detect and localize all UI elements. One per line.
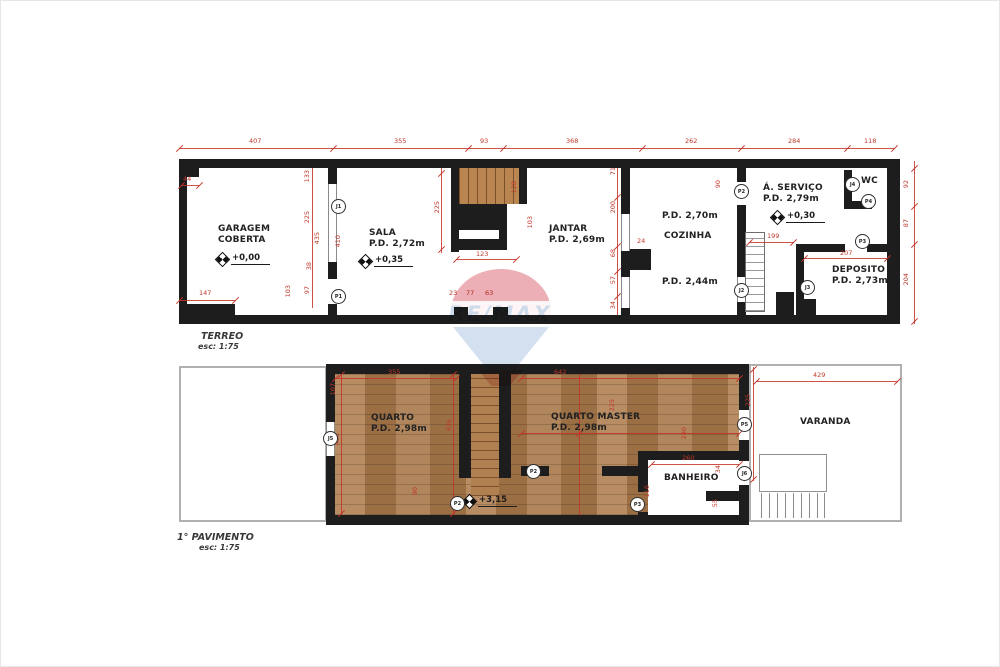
dimension-line <box>181 185 199 186</box>
dimension-label: 87 <box>903 219 910 227</box>
dimension-label: 90 <box>412 487 419 495</box>
room-label-line: P.D. 2,98m <box>551 423 640 434</box>
room-label-line: P.D. 2,44m <box>662 277 718 288</box>
door-window-tag: J6 <box>737 466 752 481</box>
room-label: BANHEIRO <box>664 473 719 484</box>
floorplan-canvas: TERREO esc: 1:75 40735593368262284118441… <box>0 0 1000 667</box>
dimension-line <box>456 259 516 260</box>
dimension-label: 128 <box>511 181 518 193</box>
room-label: VARANDA <box>800 417 851 428</box>
dimension-label: 262 <box>685 138 697 145</box>
dimension-line <box>453 374 454 515</box>
dimension-line <box>756 381 897 382</box>
level-value: +0,30 <box>786 211 825 223</box>
room-label-line: P.D. 2,79m <box>763 194 823 205</box>
door-window-tag: P2 <box>450 496 465 511</box>
door-window-tag: J5 <box>323 431 338 446</box>
dimension-label: 77 <box>466 290 474 297</box>
wall <box>739 440 749 461</box>
banheiro-floor <box>648 460 739 515</box>
room-label-line: QUARTO <box>371 413 427 424</box>
floor-pavimento: 1° PAVIMENTO esc: 1:75 35564242926022510… <box>1 1 999 666</box>
dimension-line <box>579 374 580 515</box>
dimension-line <box>179 300 235 301</box>
dimension-line <box>341 374 342 515</box>
room-label-line: P.D. 2,73m <box>832 276 888 287</box>
wall <box>638 512 648 522</box>
door-window-tag: P3 <box>630 497 645 512</box>
room-label-line: JANTAR <box>549 224 605 235</box>
dimension-label: 23 <box>449 290 457 297</box>
level-diamond-icon <box>770 209 786 225</box>
room-label: SALAP.D. 2,72m <box>369 228 425 250</box>
dimension-label: 68 <box>610 249 617 257</box>
dimension-label: 24 <box>637 238 645 245</box>
room-label-line: BANHEIRO <box>664 473 719 484</box>
dimension-label: 225 <box>434 201 441 213</box>
door-window-tag: P5 <box>737 417 752 432</box>
room-label-line: P.D. 2,70m <box>662 211 718 222</box>
floor-title-pavimento: 1° PAVIMENTO esc: 1:75 <box>177 532 254 552</box>
external-stairs <box>761 493 825 518</box>
floor-scale: esc: 1:75 <box>199 543 254 552</box>
dimension-label: 55 <box>712 499 719 507</box>
dimension-label: 90 <box>715 180 722 188</box>
dimension-label: 147 <box>199 290 211 297</box>
level-marker: +3,15 <box>464 495 517 507</box>
room-label: P.D. 2,70m <box>662 211 718 222</box>
dimension-line <box>804 258 887 259</box>
room-label-line: P.D. 2,72m <box>369 239 425 250</box>
dimension-label: 410 <box>335 235 342 247</box>
dimension-label: 204 <box>903 273 910 285</box>
dimension-line <box>617 168 618 315</box>
level-diamond-icon <box>358 253 374 269</box>
door-window-tag: J3 <box>800 280 815 295</box>
door-window-tag: P2 <box>526 464 541 479</box>
room-label: QUARTOP.D. 2,98m <box>371 413 427 435</box>
level-marker: +0,35 <box>360 255 413 267</box>
dimension-label: 44 <box>183 176 191 183</box>
dimension-line <box>441 168 442 253</box>
room-label-line: DEPOSITO <box>832 265 888 276</box>
dimension-label: 280 <box>681 427 688 439</box>
room-label-line: COBERTA <box>218 235 270 246</box>
dimension-label: 429 <box>813 372 825 379</box>
door-window-tag: P4 <box>861 194 876 209</box>
room-label-line: VARANDA <box>800 417 851 428</box>
dimension-label: 57 <box>610 276 617 284</box>
wall <box>326 456 335 525</box>
level-marker: +0,30 <box>772 211 825 223</box>
dimension-label: 63 <box>485 290 493 297</box>
dimension-label: 435 <box>314 232 321 244</box>
room-label: Á. SERVIÇOP.D. 2,79m <box>763 183 823 205</box>
dimension-label: 225 <box>745 394 752 406</box>
dimension-label: 284 <box>788 138 800 145</box>
door-window-tag: J1 <box>331 199 346 214</box>
stairs-upper <box>471 374 499 496</box>
room-label: QUARTO MASTERP.D. 2,98m <box>551 412 640 434</box>
room-label: P.D. 2,44m <box>662 277 718 288</box>
dimension-label: 116 <box>644 485 651 497</box>
room-label: DEPOSITOP.D. 2,73m <box>832 265 888 287</box>
floor-title-terreo: TERREO esc: 1:75 <box>201 331 243 351</box>
varanda-deck <box>759 454 827 492</box>
room-label-line: QUARTO MASTER <box>551 412 640 423</box>
wall <box>326 515 749 525</box>
dimension-label: 407 <box>249 138 261 145</box>
dimension-label: 103 <box>285 285 292 297</box>
wall <box>459 374 471 478</box>
room-label-line: P.D. 2,69m <box>549 235 605 246</box>
level-value: +0,35 <box>374 255 413 267</box>
dimension-label: 38 <box>306 262 313 270</box>
level-marker: +0,00 <box>217 253 270 265</box>
room-label-line: WC <box>861 176 878 187</box>
dimension-label: 103 <box>527 216 534 228</box>
door-window-tag: P2 <box>734 184 749 199</box>
door-window-tag: J4 <box>845 177 860 192</box>
dimension-label: 225 <box>304 211 311 223</box>
wall <box>739 485 749 525</box>
room-label-line: P.D. 2,98m <box>371 424 427 435</box>
room-label: COZINHA <box>664 231 712 242</box>
dimension-label: 355 <box>394 138 406 145</box>
dimension-line <box>335 378 456 379</box>
room-label-line: COZINHA <box>664 231 712 242</box>
dimension-line <box>179 148 894 149</box>
wall <box>499 374 511 478</box>
level-diamond-icon <box>215 251 231 267</box>
dimension-label: 207 <box>840 250 852 257</box>
dimension-label: 107 <box>330 383 337 395</box>
room-label: WC <box>861 176 878 187</box>
dimension-label: 118 <box>864 138 876 145</box>
dimension-label: 642 <box>554 369 566 376</box>
dimension-label: 225 <box>609 399 616 411</box>
dimension-line <box>651 464 739 465</box>
dimension-line <box>749 242 793 243</box>
dimension-line <box>521 378 739 379</box>
dimension-label: 34 <box>610 301 617 309</box>
dimension-label: 97 <box>304 286 311 294</box>
floor-name: TERREO <box>201 331 243 342</box>
level-value: +0,00 <box>231 253 270 265</box>
door-window-tag: P3 <box>855 234 870 249</box>
room-label: GARAGEMCOBERTA <box>218 224 270 246</box>
room-label-line: GARAGEM <box>218 224 270 235</box>
level-value: +3,15 <box>478 495 517 507</box>
floor-scale: esc: 1:75 <box>198 342 243 351</box>
room-label-line: SALA <box>369 228 425 239</box>
dimension-label: 368 <box>566 138 578 145</box>
dimension-label: 133 <box>304 170 311 182</box>
door-window-tag: J2 <box>734 283 749 298</box>
dimension-label: 355 <box>388 369 400 376</box>
dimension-label: 93 <box>480 138 488 145</box>
dimension-label: 71 <box>610 167 617 175</box>
dimension-label: 260 <box>682 455 694 462</box>
dimension-label: 199 <box>767 233 779 240</box>
open-slab <box>179 366 327 522</box>
floor-name: 1° PAVIMENTO <box>177 532 254 543</box>
dimension-label: 436 <box>446 419 453 431</box>
room-label: JANTARP.D. 2,69m <box>549 224 605 246</box>
dimension-label: 92 <box>903 180 910 188</box>
dimension-label: 200 <box>610 201 617 213</box>
door-window-tag: P1 <box>331 289 346 304</box>
dimension-label: 123 <box>476 251 488 258</box>
room-label-line: Á. SERVIÇO <box>763 183 823 194</box>
